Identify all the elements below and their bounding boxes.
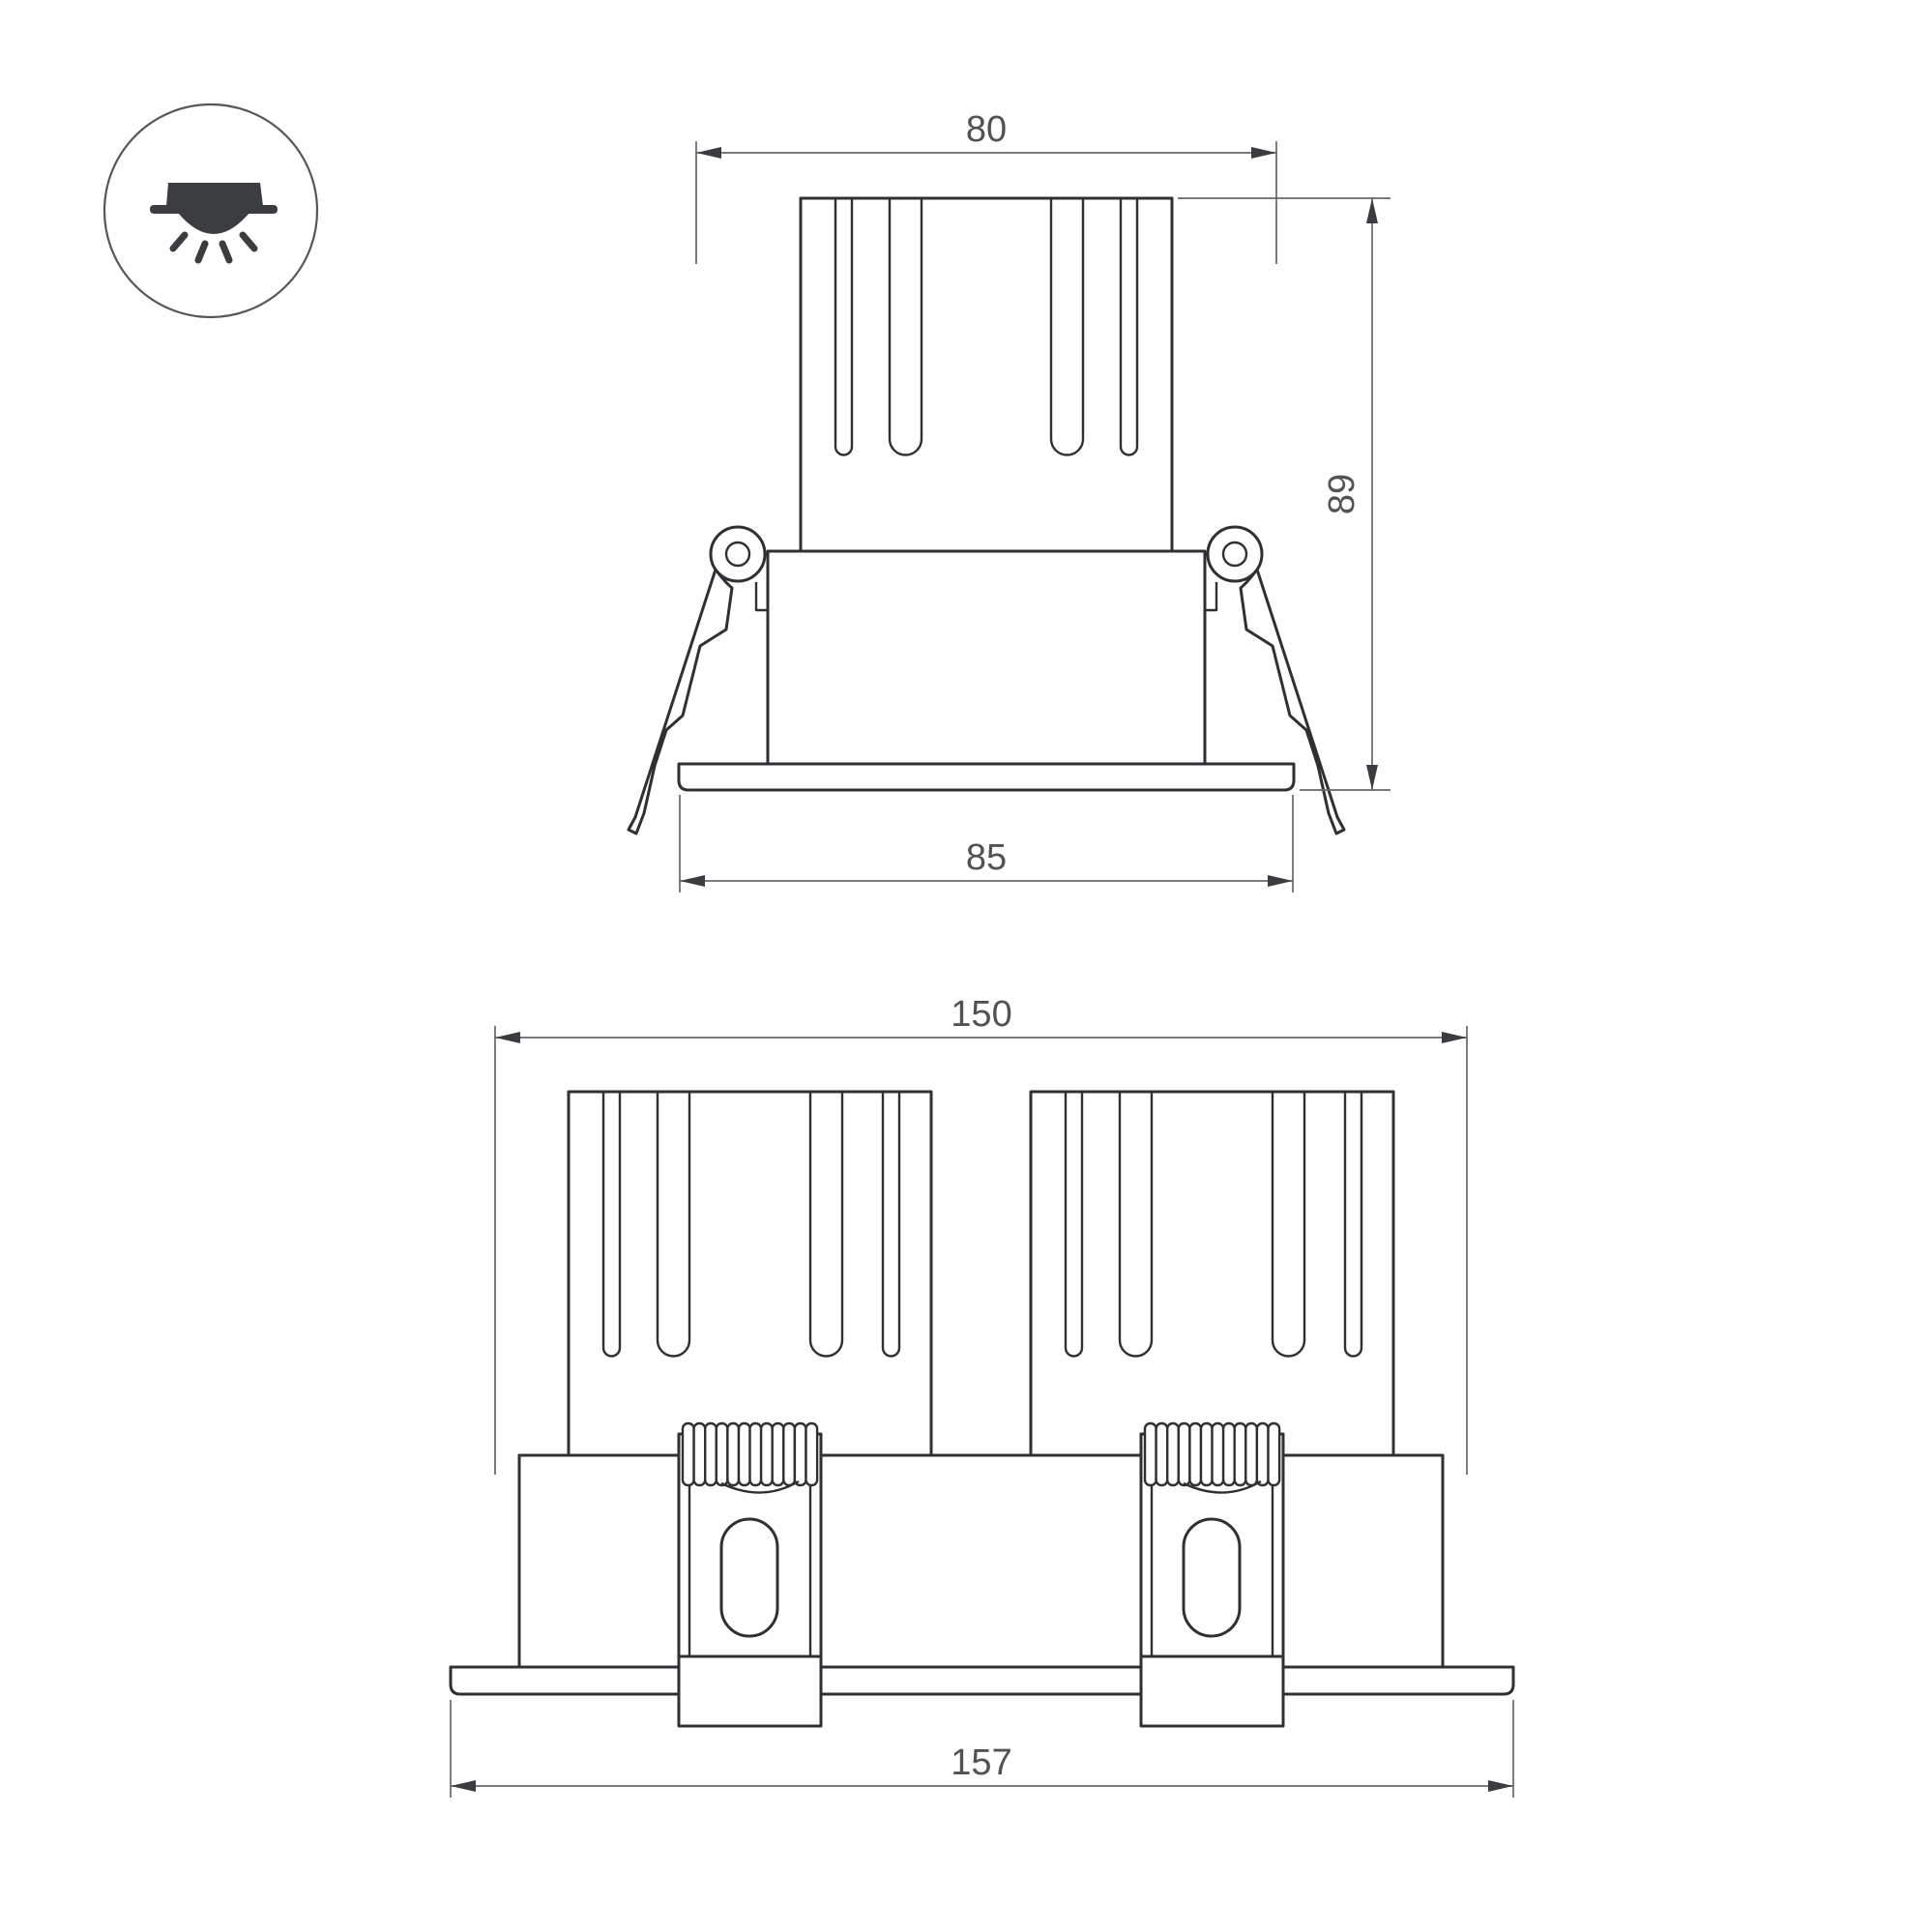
dim-label-top-width: 80 xyxy=(966,109,1007,150)
mount-assembly-left xyxy=(679,1423,821,1726)
heatsink-left xyxy=(569,1092,931,1455)
icon-light-rays xyxy=(173,235,254,260)
double-module-view: 150 157 xyxy=(451,994,1513,1798)
single-module-view: 80 85 89 xyxy=(629,109,1390,893)
heatsink xyxy=(801,198,1172,551)
mount-assembly-right xyxy=(1141,1423,1283,1726)
technical-drawing-canvas: 80 85 89 150 157 xyxy=(0,0,1932,1932)
housing-body xyxy=(768,551,1205,764)
dim-label-flange-width: 85 xyxy=(966,837,1007,878)
trim-flange xyxy=(451,1667,1513,1694)
heatsink-right xyxy=(1031,1092,1393,1455)
recessed-downlight-icon xyxy=(104,104,317,317)
housing-body xyxy=(519,1455,1443,1668)
dim-label-body-width: 150 xyxy=(951,994,1011,1035)
dim-label-height: 89 xyxy=(1322,474,1362,514)
dim-label-flange-width: 157 xyxy=(951,1742,1011,1783)
trim-flange xyxy=(679,764,1294,790)
icon-fixture-glyph xyxy=(150,183,278,234)
